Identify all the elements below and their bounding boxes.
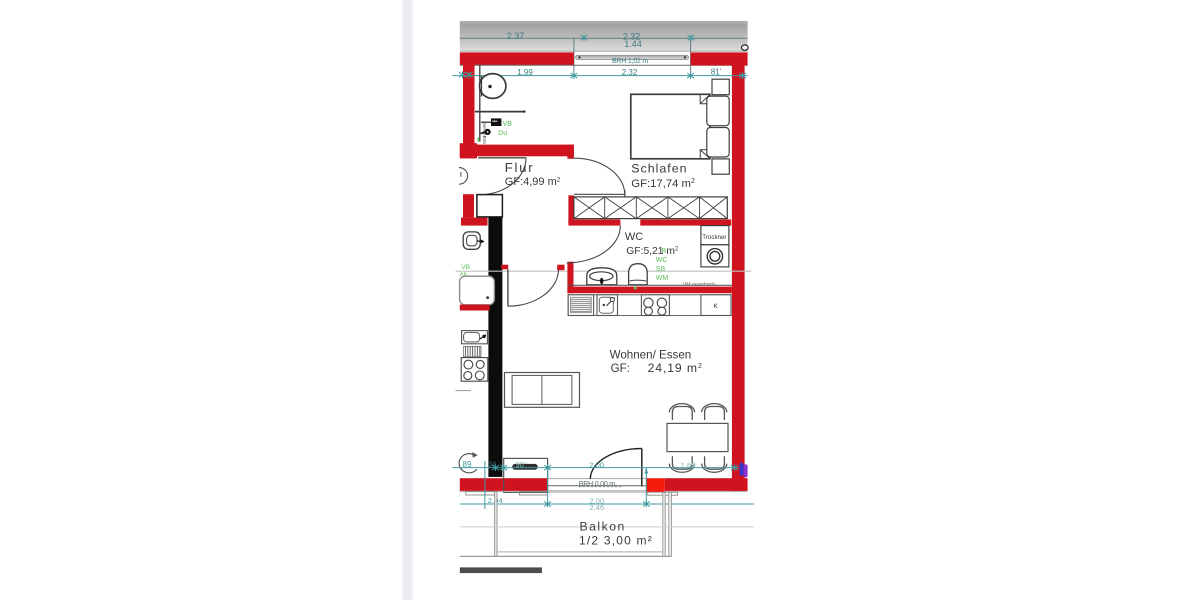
svg-text:VB: VB: [461, 264, 470, 271]
svg-text:2.46: 2.46: [589, 503, 604, 512]
svg-text:24,19 m2: 24,19 m2: [648, 361, 703, 375]
svg-text:Schlafen: Schlafen: [631, 162, 687, 176]
svg-text:GF:4,99 m2: GF:4,99 m2: [505, 176, 561, 188]
svg-text:WM: WM: [482, 136, 487, 144]
svg-text:WC: WC: [656, 257, 668, 264]
svg-text:WC: WC: [625, 231, 643, 243]
svg-text:1/2 3,00 m²: 1/2 3,00 m²: [579, 534, 653, 548]
svg-text:BRH 1,02 m: BRH 1,02 m: [612, 58, 648, 65]
svg-text:Balkon: Balkon: [580, 519, 626, 533]
svg-text:Flur: Flur: [505, 160, 535, 175]
svg-text:1.69: 1.69: [681, 460, 696, 469]
svg-text:B: B: [662, 248, 667, 255]
svg-text:GF:: GF:: [611, 362, 630, 375]
svg-text:1.44: 1.44: [624, 39, 642, 49]
svg-text:Trockner: Trockner: [702, 234, 726, 241]
svg-text:2.00: 2.00: [589, 460, 604, 469]
svg-text:WM: WM: [656, 275, 669, 282]
svg-text:Du: Du: [498, 130, 507, 137]
svg-text:K: K: [714, 303, 719, 310]
svg-text:SB: SB: [656, 266, 666, 273]
svg-text:VM raumhoch: VM raumhoch: [683, 282, 715, 288]
svg-text:GF:17,74 m2: GF:17,74 m2: [631, 178, 695, 190]
svg-text:89: 89: [463, 460, 472, 469]
svg-text:34: 34: [488, 460, 496, 469]
svg-text:Wohnen/ Essen: Wohnen/ Essen: [610, 349, 692, 362]
svg-text:VB: VB: [503, 121, 513, 128]
svg-text:90': 90': [516, 460, 526, 469]
svg-text:GF:5,21 m2: GF:5,21 m2: [626, 246, 679, 257]
svg-text:2.37: 2.37: [507, 31, 525, 41]
